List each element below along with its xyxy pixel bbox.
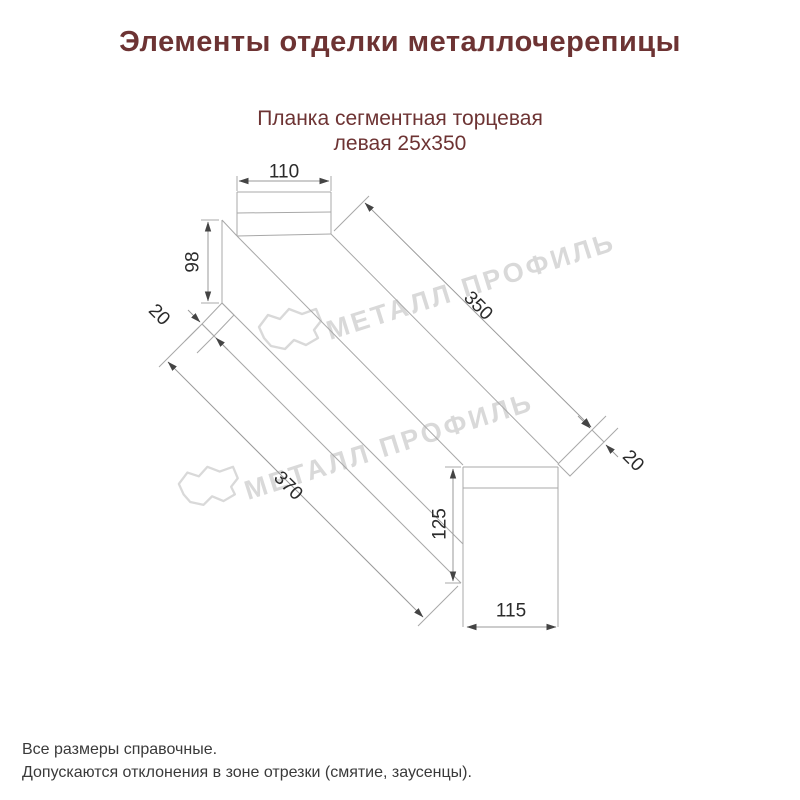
footnote-line2: Допускаются отклонения в зоне отрезки (с… (22, 761, 472, 784)
footnote-line1: Все размеры справочные. (22, 738, 472, 761)
dimension-label-end-height: 125 (430, 508, 451, 540)
dimension-label-left-height: 98 (183, 251, 204, 272)
dimension-label-top-width: 110 (269, 162, 299, 183)
brand-logo-cloud-icon (259, 309, 321, 349)
dimension-label-end-width: 115 (496, 601, 526, 622)
brand-watermark-upper: МЕТАЛЛ ПРОФИЛЬ (259, 226, 619, 349)
brand-watermark-text: МЕТАЛЛ ПРОФИЛЬ (323, 226, 619, 345)
technical-drawing: МЕТАЛЛ ПРОФИЛЬ МЕТАЛЛ ПРОФИЛЬ (0, 0, 800, 800)
dimension-label-hem-left: 20 (144, 300, 174, 330)
footnotes: Все размеры справочные. Допускаются откл… (22, 738, 472, 784)
dimension-lines: 110 98 20 350 370 (144, 162, 648, 628)
drawing-page: Элементы отделки металлочерепицы Планка … (0, 0, 800, 800)
brand-logo-cloud-icon (179, 467, 238, 505)
dimension-label-hem-right: 20 (618, 446, 648, 476)
